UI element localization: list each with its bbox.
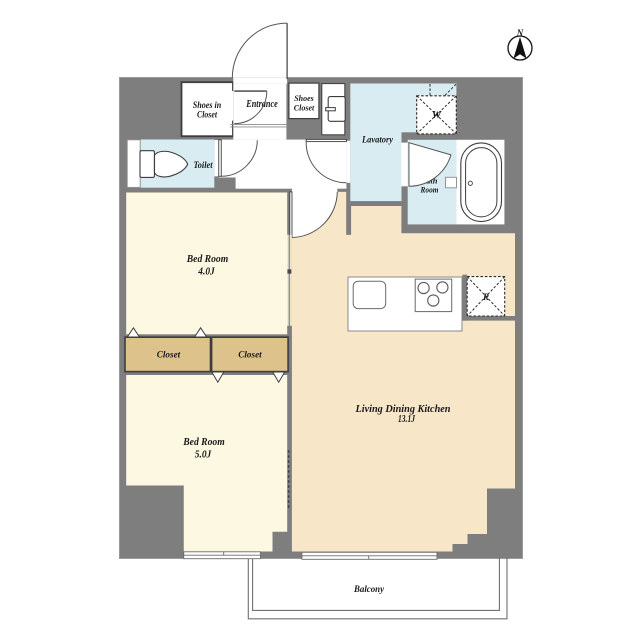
svg-text:4.0J: 4.0J: [197, 266, 215, 278]
svg-text:Bed Room: Bed Room: [182, 436, 225, 448]
svg-text:Shoes in: Shoes in: [193, 101, 222, 111]
svg-text:Balcony: Balcony: [353, 584, 385, 594]
svg-text:Closet: Closet: [197, 111, 217, 121]
svg-text:Shoes: Shoes: [294, 93, 314, 103]
svg-text:13.1J: 13.1J: [398, 414, 416, 425]
svg-text:W: W: [432, 110, 442, 121]
svg-text:Lavatory: Lavatory: [361, 136, 394, 146]
svg-text:Closet: Closet: [294, 103, 315, 113]
svg-text:Closet: Closet: [157, 350, 181, 360]
svg-text:Closet: Closet: [238, 350, 262, 360]
svg-text:R: R: [482, 292, 489, 302]
svg-text:Bed Room: Bed Room: [186, 253, 229, 265]
svg-text:Toilet: Toilet: [194, 161, 213, 171]
svg-text:N: N: [516, 28, 524, 38]
svg-text:5.0J: 5.0J: [195, 449, 212, 461]
svg-text:Room: Room: [420, 185, 439, 195]
